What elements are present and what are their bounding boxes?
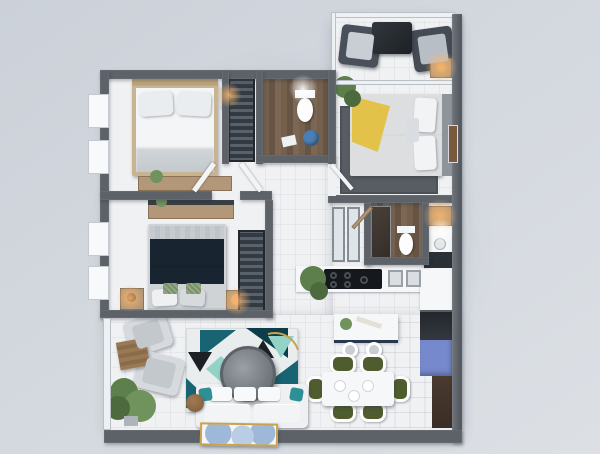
- balcony-railing-top: [333, 12, 455, 18]
- sofa-back-cushion: [210, 387, 232, 401]
- wall-bottom: [104, 430, 462, 443]
- window: [88, 140, 109, 174]
- sofa-back-cushion: [234, 387, 256, 401]
- kitchen-cabinet: [420, 268, 454, 310]
- bathroom1-light: [288, 74, 318, 104]
- wall-hall-master: [328, 70, 336, 166]
- burner: [344, 281, 351, 288]
- balcony-coffee-table: [372, 22, 412, 54]
- laundry-bin: [303, 130, 319, 146]
- bed2-green-cushion: [186, 283, 201, 294]
- shower: [371, 206, 391, 258]
- sofa-teal-pillow: [289, 387, 304, 402]
- sink-basin: [388, 270, 403, 287]
- wall-bathroom2-bottom: [364, 257, 429, 265]
- glass-partition: [347, 207, 360, 262]
- plate: [348, 390, 360, 402]
- island-plant: [340, 318, 352, 330]
- dresser-plant: [150, 170, 163, 183]
- kitchen-plant: [310, 282, 328, 300]
- glass-partition: [332, 207, 345, 262]
- dining-chair: [330, 354, 356, 374]
- art-doormat: [200, 422, 278, 446]
- bed-headboard: [132, 78, 218, 86]
- window: [88, 222, 109, 256]
- window: [88, 266, 109, 300]
- wall-bathroom1-bottom: [256, 155, 335, 163]
- plate: [334, 380, 346, 392]
- bedroom1-lamp-glow: [216, 82, 242, 108]
- toilet-tank: [397, 226, 415, 233]
- bed-pillow: [138, 91, 174, 117]
- wood-side-table: [186, 394, 204, 412]
- sofa-seat-cushion: [204, 404, 250, 422]
- sink-basin: [406, 270, 421, 287]
- bed2-navy-duvet: [150, 239, 224, 284]
- burner: [344, 272, 351, 279]
- bed2-green-cushion: [163, 283, 178, 294]
- fridge-blue: [420, 340, 454, 376]
- window: [88, 94, 109, 128]
- oven: [420, 310, 454, 340]
- balcony-armchair-cushion: [346, 32, 375, 61]
- sofa-seat-cushion: [254, 404, 300, 422]
- wall-bedroom-divider: [240, 191, 272, 200]
- dining-chair: [360, 354, 386, 374]
- burner: [330, 272, 337, 279]
- bed2-mattress-top: [150, 226, 224, 239]
- glass-wall-living-left: [103, 318, 111, 430]
- plate: [362, 380, 374, 392]
- vanity-light: [428, 218, 454, 244]
- bed2-lamp-left-glow: [116, 284, 144, 312]
- bed-folded-blanket: [136, 146, 214, 172]
- plant-pot: [124, 416, 138, 426]
- sofa-back-cushion: [258, 387, 280, 401]
- burner: [330, 281, 337, 288]
- master-lamp-glow: [424, 50, 458, 84]
- apartment-floor-plan: [0, 0, 600, 454]
- dining-table: [322, 372, 394, 406]
- toilet-bowl: [399, 233, 413, 255]
- bed-pillow: [176, 91, 211, 117]
- wall-bedroom2-right: [265, 200, 273, 318]
- burner: [360, 276, 368, 284]
- master-plant: [344, 90, 361, 107]
- bed2-lamp-right-glow: [222, 286, 252, 316]
- wall-bathroom1-left: [256, 70, 263, 164]
- wall-art: [449, 126, 457, 162]
- master-pillow-small: [406, 118, 419, 142]
